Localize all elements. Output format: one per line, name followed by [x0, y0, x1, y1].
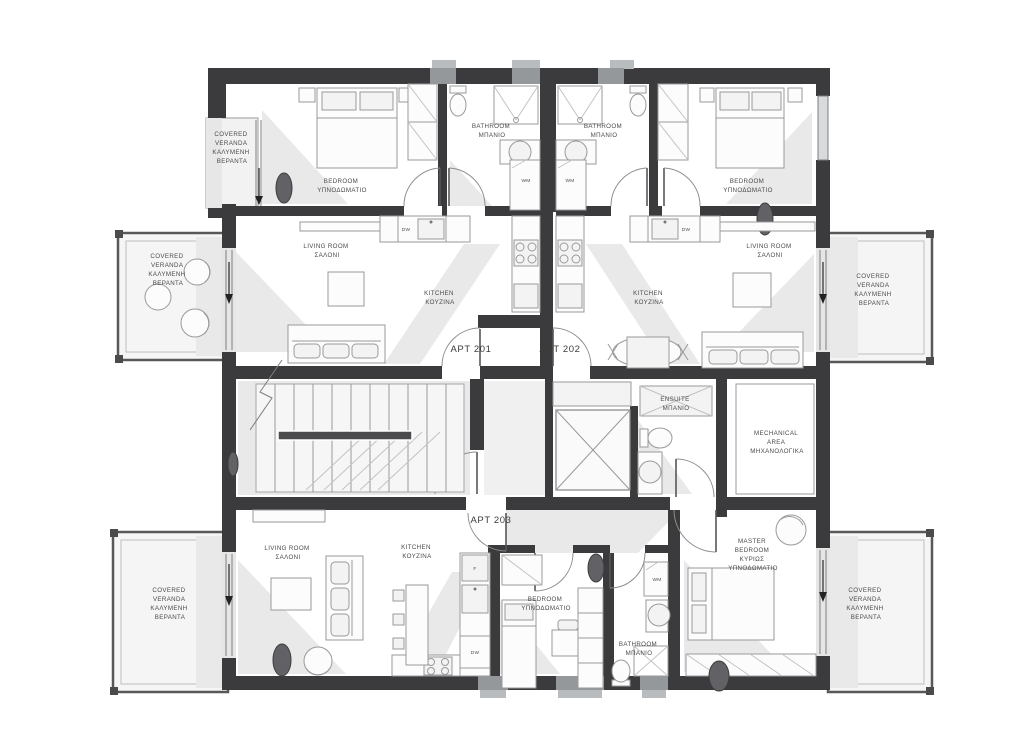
toilet	[640, 428, 672, 448]
washing-machine	[510, 160, 540, 210]
kitchen-island	[406, 585, 428, 665]
floor-plan: COVERED VERANDA ΚΑΛΥΜΕΝΗ ΒΕΡΑΝΤΑ COVERED…	[0, 0, 1024, 755]
wardrobe	[502, 555, 542, 585]
sofa	[326, 556, 363, 640]
sliding-door	[222, 248, 236, 352]
veranda-mid-left	[115, 230, 228, 363]
pillow	[360, 92, 393, 110]
washing-machine	[556, 160, 586, 210]
sofa	[288, 325, 385, 363]
sofa	[702, 332, 803, 368]
floor-plan-canvas: COVERED VERANDA ΚΑΛΥΜΕΝΗ ΒΕΡΑΝΤΑ COVERED…	[0, 0, 1024, 755]
apartment-label-201: APT 201	[451, 344, 492, 355]
kitchen-sink	[462, 585, 488, 613]
veranda-bottom-left	[110, 529, 228, 695]
kitchen-sink	[418, 219, 444, 239]
apartment-label-202: APT 202	[540, 344, 581, 355]
appliance-label-wm: WM	[522, 178, 531, 184]
sink	[648, 604, 670, 626]
appliance-label-wm: WM	[566, 178, 575, 184]
stove	[514, 240, 538, 266]
toilet	[450, 86, 466, 93]
appliance-label-wm: WM	[653, 577, 662, 583]
elevator	[553, 382, 631, 490]
column	[228, 452, 238, 476]
pillow	[720, 92, 749, 110]
coffee-table	[271, 578, 311, 610]
appliance-label-dw: DW	[402, 227, 411, 233]
appliance-label-dw: DW	[471, 650, 480, 656]
kitchen-sink	[652, 219, 678, 239]
apartment-label-203: APT 203	[471, 515, 512, 526]
sliding-door	[816, 248, 830, 352]
nightstand	[700, 88, 714, 102]
bar-stool	[393, 614, 404, 625]
pillow	[752, 92, 781, 110]
single-bed	[502, 600, 536, 688]
appliance-label-fridge: F	[473, 566, 476, 572]
plant	[709, 661, 729, 691]
plant	[276, 173, 292, 203]
stair-handrail	[278, 431, 412, 440]
patio-table	[145, 284, 171, 310]
tv-sideboard	[253, 510, 325, 522]
plant	[273, 644, 291, 676]
sliding-door	[816, 548, 830, 656]
sink	[639, 461, 661, 483]
stove	[558, 240, 582, 266]
toilet	[630, 86, 646, 93]
pillow	[322, 92, 356, 110]
wardrobe	[686, 654, 816, 676]
coffee-table	[328, 272, 364, 306]
coffee-table	[733, 273, 771, 307]
toilet	[612, 660, 630, 686]
double-bed	[688, 568, 774, 640]
plant	[588, 554, 604, 582]
nightstand	[788, 88, 802, 102]
bar-stool	[393, 638, 404, 649]
appliance-label-dw: DW	[682, 227, 691, 233]
veranda-bottom-right	[828, 529, 934, 695]
sliding-door	[222, 552, 236, 658]
bar-stool	[393, 590, 404, 601]
nightstand	[299, 88, 315, 102]
